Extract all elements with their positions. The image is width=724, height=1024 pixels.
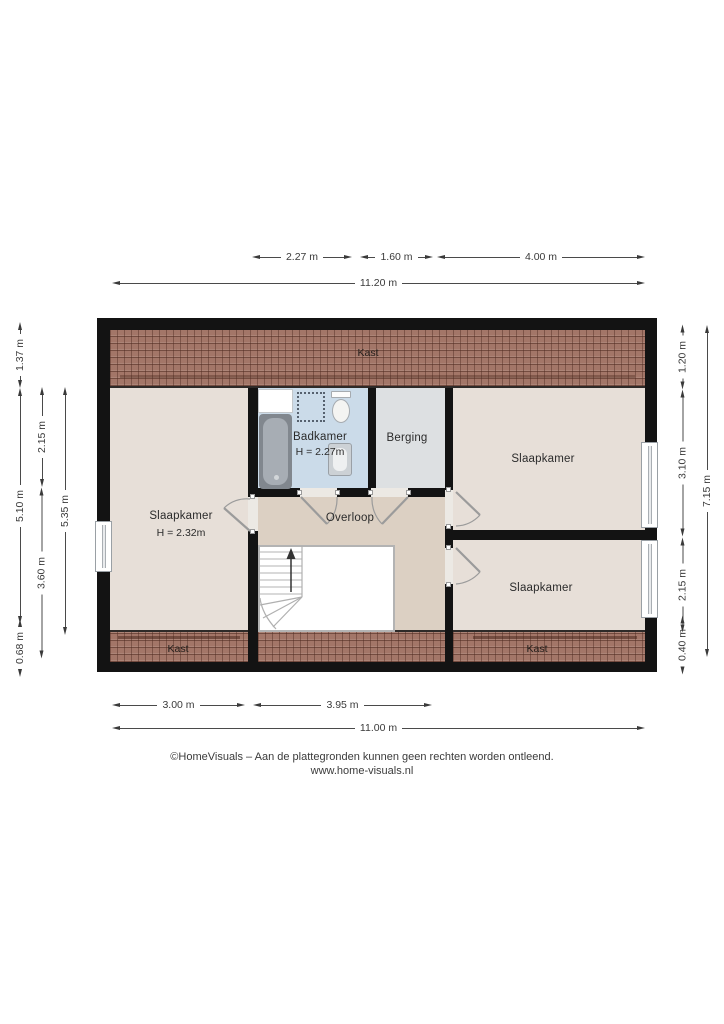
window-slaapkamer-left [95,521,112,572]
label-badkamer: Badkamer [293,431,347,443]
label-kast-top: Kast [357,347,378,359]
label-badkamer-height: H = 2.27m [296,446,345,458]
dim-bottom-overloop-width: 3.95 m [253,698,432,712]
label-slaapkamer-left: Slaapkamer [149,510,212,522]
floorplan-page: 2.27 m 1.60 m 4.00 m 11.20 m 1.37 m 5.10… [0,0,724,1024]
label-slaapkamer-bottom-right: Slaapkamer [509,582,572,594]
window-slaapkamer-bottom-right [641,540,658,618]
label-kast-bottom-right: Kast [526,643,547,655]
label-kast-bottom-left: Kast [167,643,188,655]
footer-website: www.home-visuals.nl [0,765,724,777]
window-slaapkamer-top-right [641,442,658,528]
dim-label: 3.95 m [321,698,363,712]
dim-label: 11.00 m [355,721,402,735]
footer-disclaimer: ©HomeVisuals – Aan de plattegronden kunn… [0,751,724,763]
dim-bottom-slaapkamer-left-width: 3.00 m [112,698,245,712]
dim-label: 3.00 m [157,698,199,712]
dim-bottom-total-width: 11.00 m [112,721,645,735]
label-slaapkamer-top-right: Slaapkamer [511,453,574,465]
label-overloop: Overloop [326,512,374,524]
label-berging: Berging [386,432,427,444]
label-slaapkamer-left-height: H = 2.32m [157,527,206,539]
